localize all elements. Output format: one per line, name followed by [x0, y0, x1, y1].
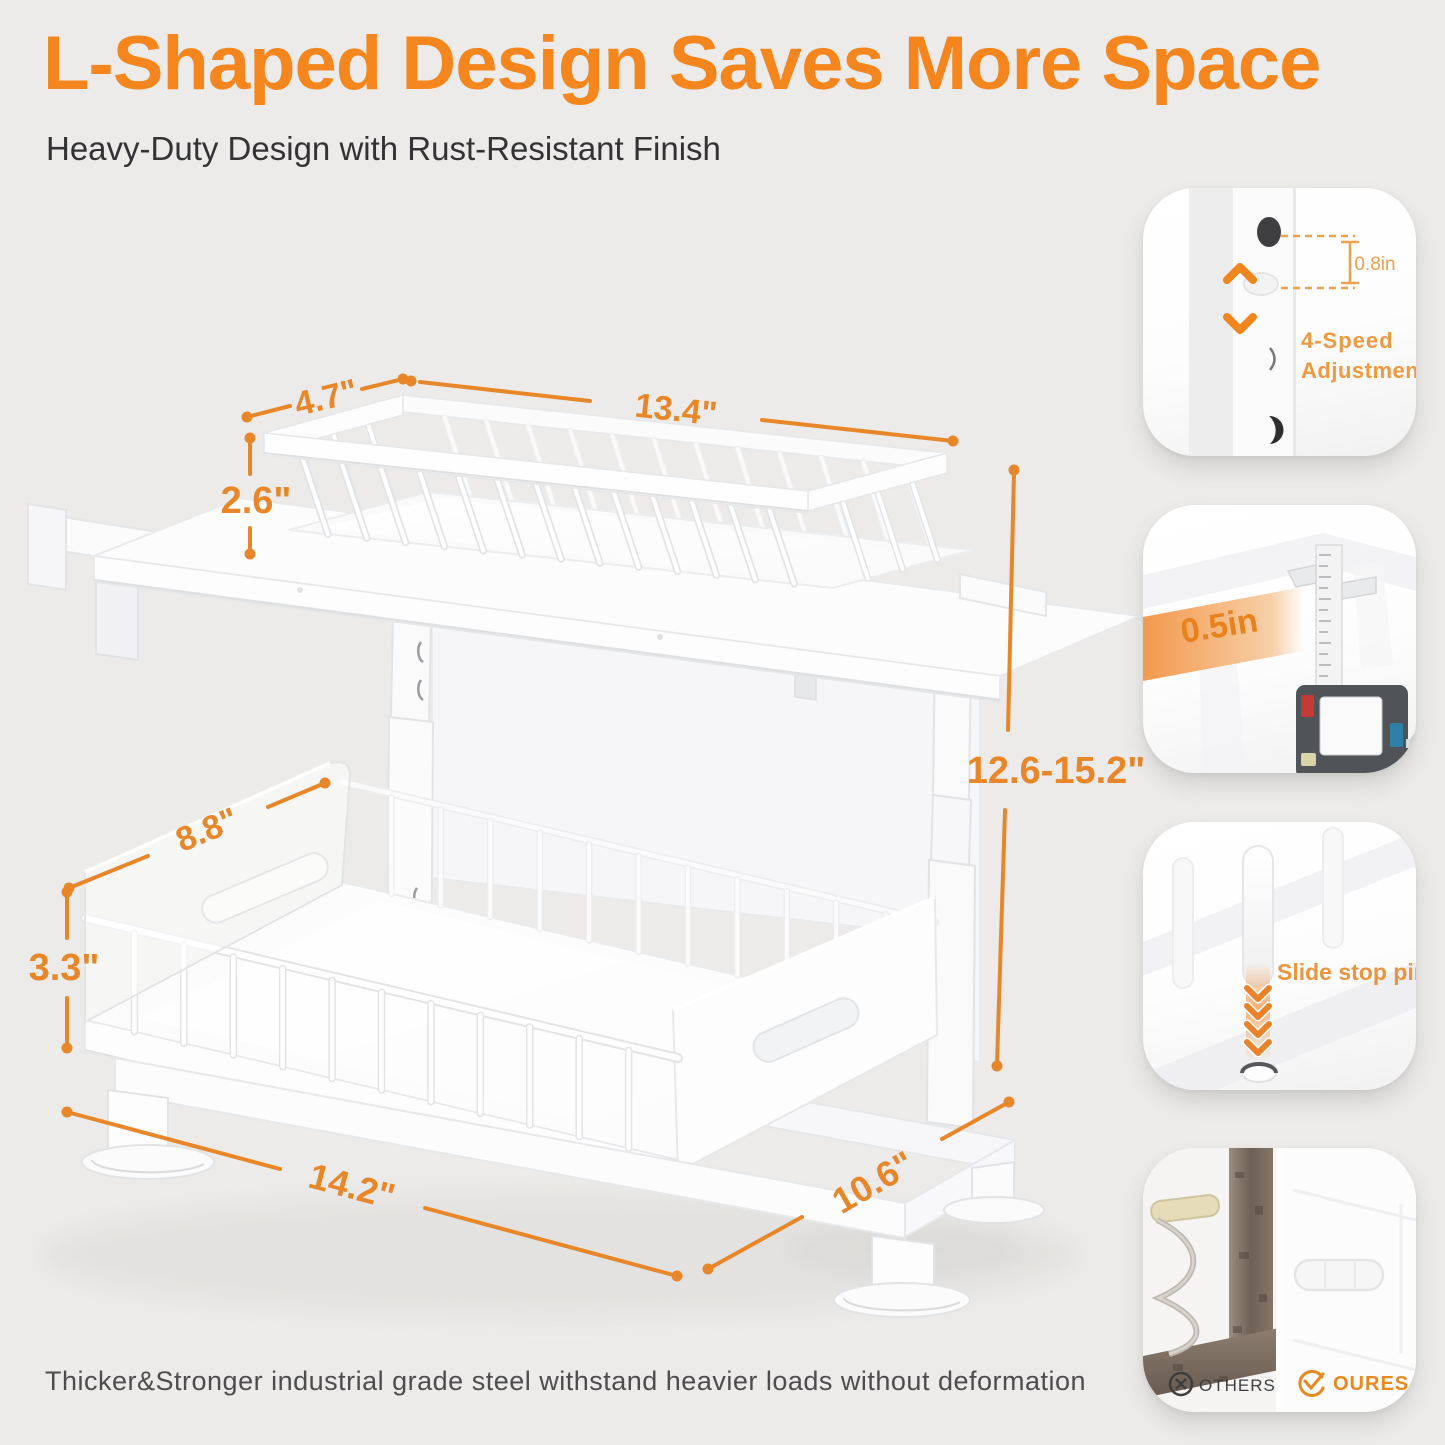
adjust-measure: 0.8in [1354, 254, 1395, 275]
caliper-blue-button [1390, 723, 1403, 747]
callout-card-comparison: OTHERS OURES [1143, 1148, 1416, 1412]
wire-post-right [1323, 828, 1343, 948]
suction-cup-front-left [82, 1145, 214, 1179]
ours-label: OURES [1333, 1373, 1409, 1395]
page-footnote: Thicker&Stronger industrial grade steel … [45, 1366, 1086, 1397]
arm-end-cap [28, 504, 66, 590]
adjust-label-2: Adjustment [1301, 358, 1416, 383]
product-infographic: L-Shaped Design Saves More Space Heavy-D… [0, 0, 1445, 1445]
caliper-beige-button [1301, 753, 1316, 766]
label-height-range: 12.6-15.2" [967, 750, 1146, 792]
slide-stop-label: Slide stop pin [1277, 959, 1416, 985]
suction-cup-front-right [834, 1283, 970, 1317]
label-drawer-height: 3.3" [29, 947, 100, 989]
pole-hole [1257, 217, 1281, 247]
label-top-height: 2.6" [221, 480, 292, 522]
pole-right [927, 645, 975, 1128]
caliper-red-button [1301, 695, 1314, 717]
callout-card-adjustment: 0.8in 4-Speed Adjustment [1143, 188, 1416, 456]
callout-card-thickness: 0.5in [1143, 505, 1416, 773]
adjust-label-1: 4-Speed [1301, 328, 1394, 353]
panel-slot [1295, 1260, 1383, 1290]
suction-cup-back-right [944, 1197, 1044, 1223]
split-divider [1276, 1148, 1285, 1412]
callout-card-slide-stop: Slide stop pin [1143, 822, 1416, 1090]
others-label: OTHERS [1199, 1376, 1276, 1395]
wire-post-left [1173, 858, 1193, 988]
